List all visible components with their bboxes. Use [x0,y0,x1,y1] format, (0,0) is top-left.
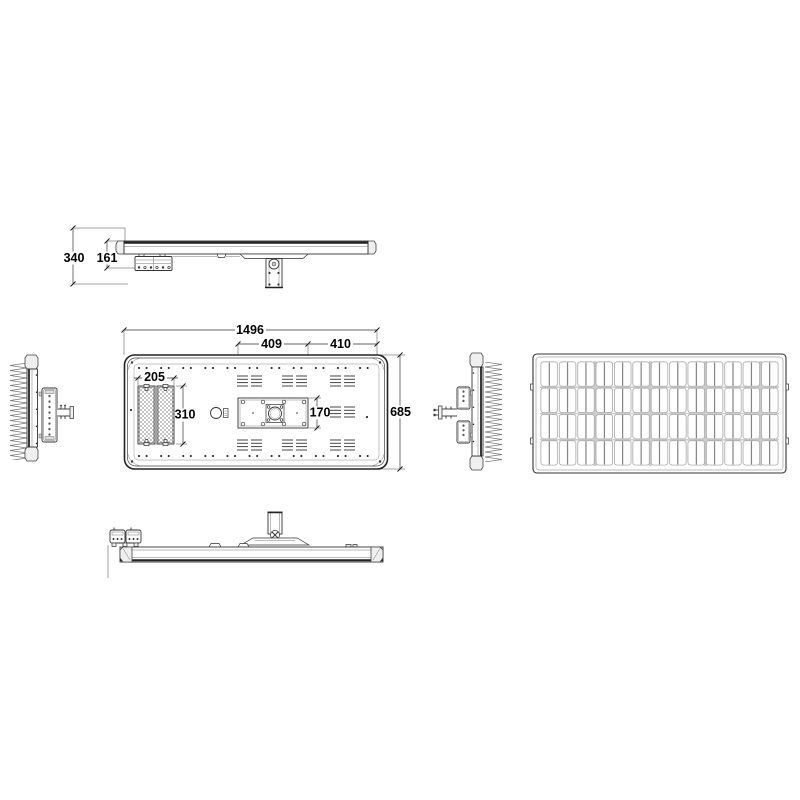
technical-drawing-canvas: 340 161 [0,0,800,800]
led-lamp-module-side [135,254,172,271]
end-cap-right [371,547,383,562]
end-cap-bottom [25,447,38,461]
plan-view: 1496 409 410 685 [115,320,415,482]
panel-housing-side [120,544,383,563]
dimension-410: 410 [308,337,380,351]
panel-housing-end [25,355,38,461]
end-cap-left [120,547,132,562]
end-cap-top [470,353,483,367]
side-elevation-bottom [100,505,420,585]
mounting-bracket-side [241,512,309,545]
dim-label-410: 410 [330,337,351,351]
mounting-bracket-side [240,254,308,288]
mounting-arm-end [434,406,458,419]
dim-label-409: 409 [261,337,282,351]
led-lamp-module-side [110,528,141,547]
end-view-right [428,345,536,480]
end-view-left [5,350,105,475]
end-cap-top [25,355,38,369]
led-lamp-module-end [39,388,57,442]
side-elevation-top: 340 161 [60,220,400,300]
heatsink-fins [10,363,27,460]
cable-gland [217,254,226,258]
led-lamp-module-end [457,387,473,443]
dim-label-310: 310 [175,408,196,422]
cable-gland [209,544,221,548]
dim-label-170: 170 [310,406,331,420]
dim-label-161: 161 [97,251,118,265]
dim-label-205: 205 [144,370,165,384]
dim-label-1496: 1496 [236,323,264,337]
dim-label-685: 685 [390,405,411,419]
solar-cell-grid [540,361,779,466]
heatsink-fins [485,362,502,462]
photocell [211,408,229,419]
connector-block [224,409,229,418]
mounting-plate [238,398,308,428]
dim-label-340: 340 [64,251,85,265]
end-cap-left [116,241,124,254]
solar-panel-view [528,348,793,480]
end-cap-right [368,241,376,254]
panel-housing-end [470,353,483,470]
end-cap-bottom [470,456,483,470]
mounting-arm-end [57,405,74,419]
